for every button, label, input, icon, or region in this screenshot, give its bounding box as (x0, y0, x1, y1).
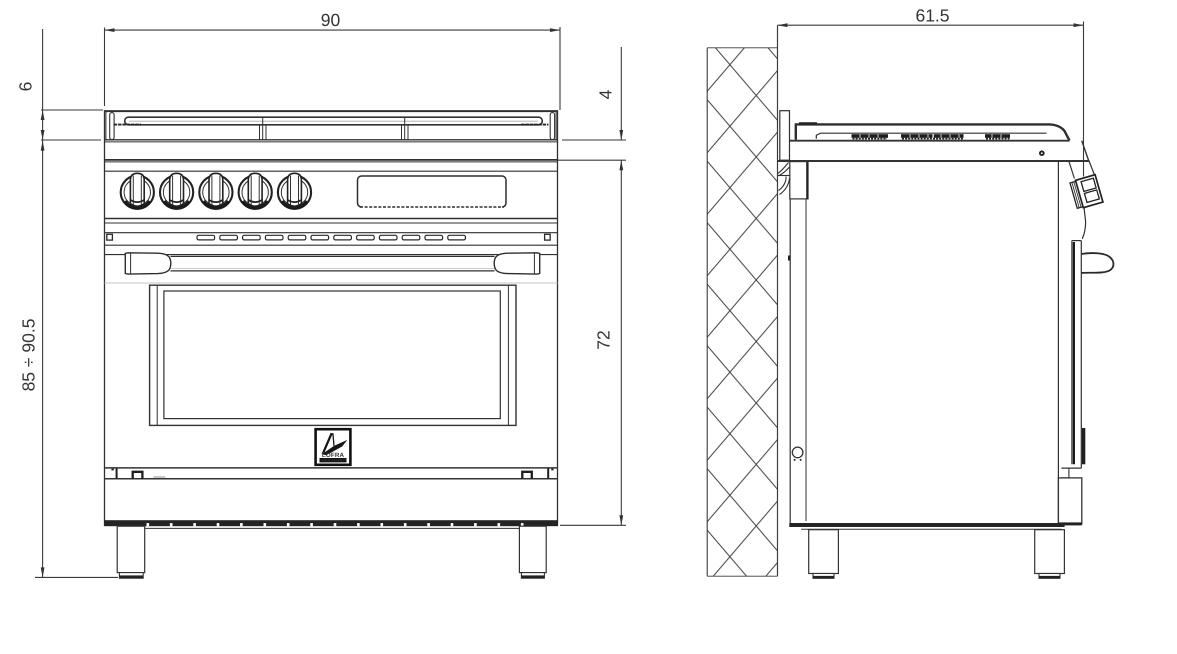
svg-text:4: 4 (596, 89, 616, 99)
svg-text:72: 72 (594, 330, 614, 349)
svg-text:61.5: 61.5 (915, 6, 949, 26)
svg-text:85 ÷ 90.5: 85 ÷ 90.5 (19, 319, 39, 392)
svg-text:90: 90 (321, 10, 341, 30)
svg-text:6: 6 (16, 82, 36, 92)
svg-text:MADE IN ITALY: MADE IN ITALY (321, 459, 346, 463)
